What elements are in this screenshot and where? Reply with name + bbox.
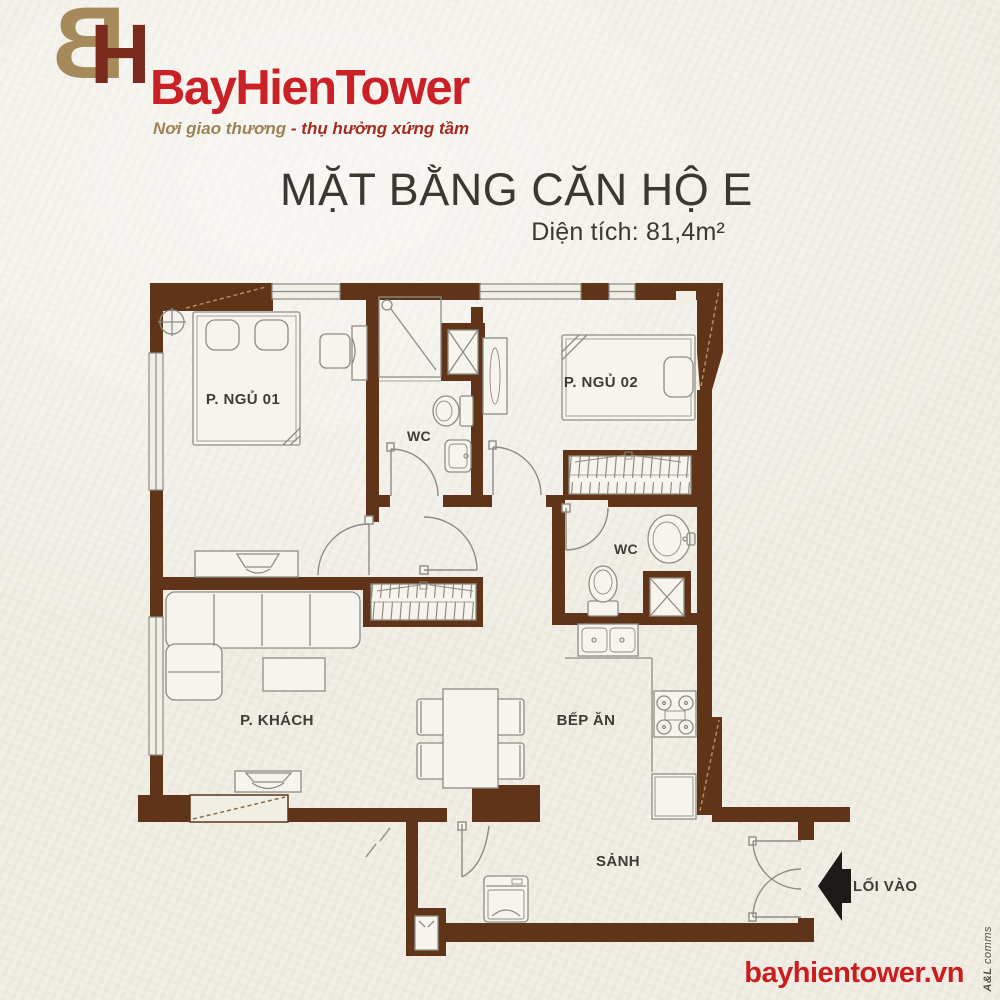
room-label-living: P. KHÁCH <box>240 712 314 729</box>
toilet-wc2 <box>588 566 618 616</box>
door-hall <box>458 822 489 877</box>
room-label-hall: SẢNH <box>596 853 640 870</box>
window-top-bedroom1 <box>272 284 340 299</box>
door-wc1 <box>387 443 438 496</box>
website-url: bayhientower.vn <box>744 957 964 990</box>
wardrobe-bedroom2 <box>569 452 691 494</box>
window-top-bedroom2-left <box>480 284 581 299</box>
hall-shaft <box>415 916 438 950</box>
angled-wall-piece <box>190 795 288 822</box>
room-label-wc1: WC <box>407 428 431 444</box>
cabinet-bedroom2 <box>483 338 507 414</box>
door-bedroom2 <box>489 441 541 495</box>
entrance-arrow-icon <box>818 851 851 921</box>
room-label-bedroom1: P. NGỦ 01 <box>206 390 280 408</box>
sink-wc1 <box>445 440 471 472</box>
room-label-wc2: WC <box>614 541 638 557</box>
entrance-label: LỐI VÀO <box>853 877 917 895</box>
shaft-2 <box>650 578 684 616</box>
wardrobe-corridor <box>371 582 476 620</box>
window-left-bedroom1 <box>149 353 163 490</box>
shaft-1 <box>448 330 478 374</box>
door-entrance-double <box>749 837 801 921</box>
door-bedroom1 <box>318 516 373 575</box>
desk-bedroom1 <box>320 326 367 380</box>
wall-break-ticks <box>366 828 390 857</box>
floor-plan: P. NGỦ 01 WC P. NGỦ 02 WC P. KHÁCH BẾP Ă… <box>0 0 1000 1000</box>
agency-credit-rest: comms <box>982 926 994 964</box>
kitchen-sink <box>578 624 638 656</box>
door-corridor-living <box>420 517 477 574</box>
poster-page: B H BayHienTower Nơi giao thương - thụ h… <box>0 0 1000 1000</box>
washing-machine <box>484 876 528 922</box>
stove <box>654 691 696 737</box>
agency-credit: A&L comms <box>982 926 994 992</box>
fridge <box>652 774 696 819</box>
sink-wc2 <box>648 515 695 563</box>
agency-credit-bold: A&L <box>982 968 994 992</box>
bed-bedroom1 <box>193 312 300 445</box>
window-left-living <box>149 617 163 755</box>
tv-cabinet-living <box>235 771 301 792</box>
coffee-table <box>263 658 325 691</box>
dresser-bedroom1 <box>195 551 298 577</box>
room-label-kitchen: BẾP ĂN <box>557 712 616 729</box>
room-label-bedroom2: P. NGỦ 02 <box>564 373 638 391</box>
toilet-wc1 <box>433 396 473 426</box>
dining-set <box>417 689 524 788</box>
window-top-bedroom2-right <box>609 284 635 299</box>
shower-wc1 <box>379 297 441 381</box>
door-wc2 <box>562 504 608 550</box>
